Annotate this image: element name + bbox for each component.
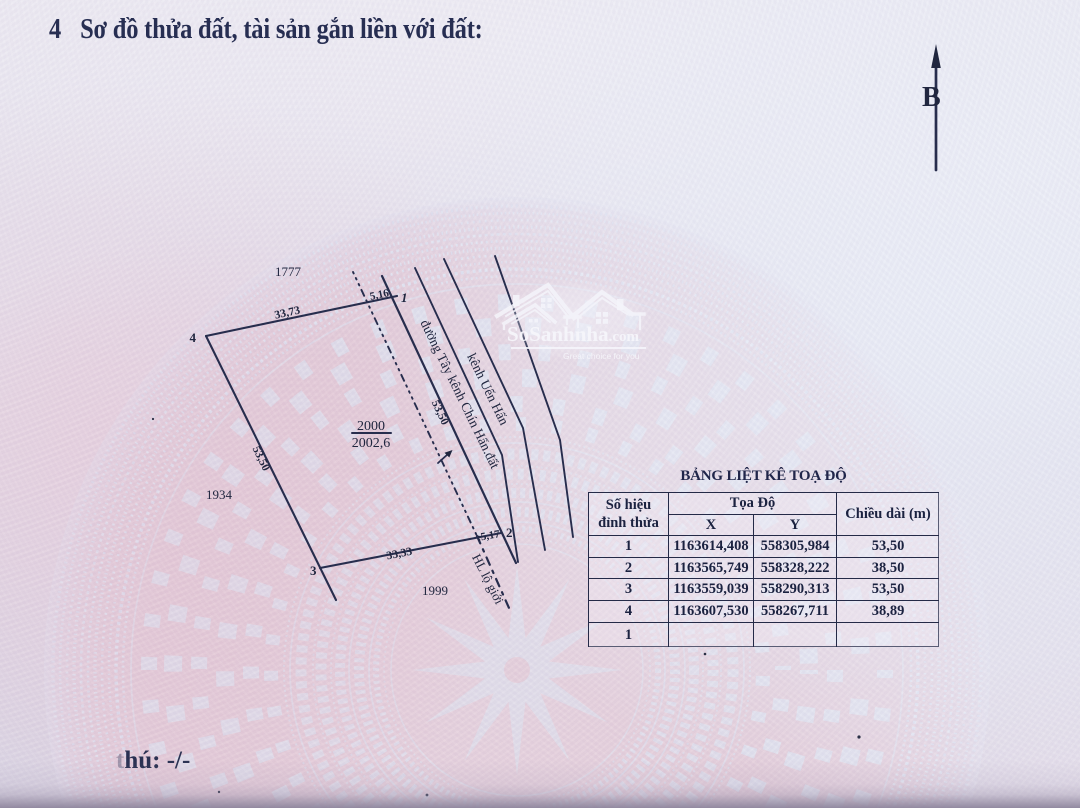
svg-text:2000: 2000: [357, 419, 385, 434]
svg-text:2002,6: 2002,6: [352, 436, 391, 451]
svg-text:33,73: 33,73: [273, 304, 301, 321]
svg-text:33,33: 33,33: [386, 546, 414, 563]
svg-text:3: 3: [310, 563, 317, 578]
svg-text:4: 4: [190, 330, 197, 345]
svg-text:53,50: 53,50: [429, 398, 451, 427]
svg-text:1934: 1934: [206, 487, 233, 502]
svg-text:5,16: 5,16: [369, 287, 391, 303]
svg-text:53,50: 53,50: [250, 444, 272, 473]
svg-text:1777: 1777: [275, 264, 302, 279]
svg-text::5,17: :5,17: [476, 528, 501, 544]
svg-text:2: 2: [506, 525, 513, 540]
svg-text:B: B: [922, 82, 941, 113]
svg-text:1999: 1999: [422, 583, 448, 598]
svg-text:1: 1: [401, 290, 408, 305]
